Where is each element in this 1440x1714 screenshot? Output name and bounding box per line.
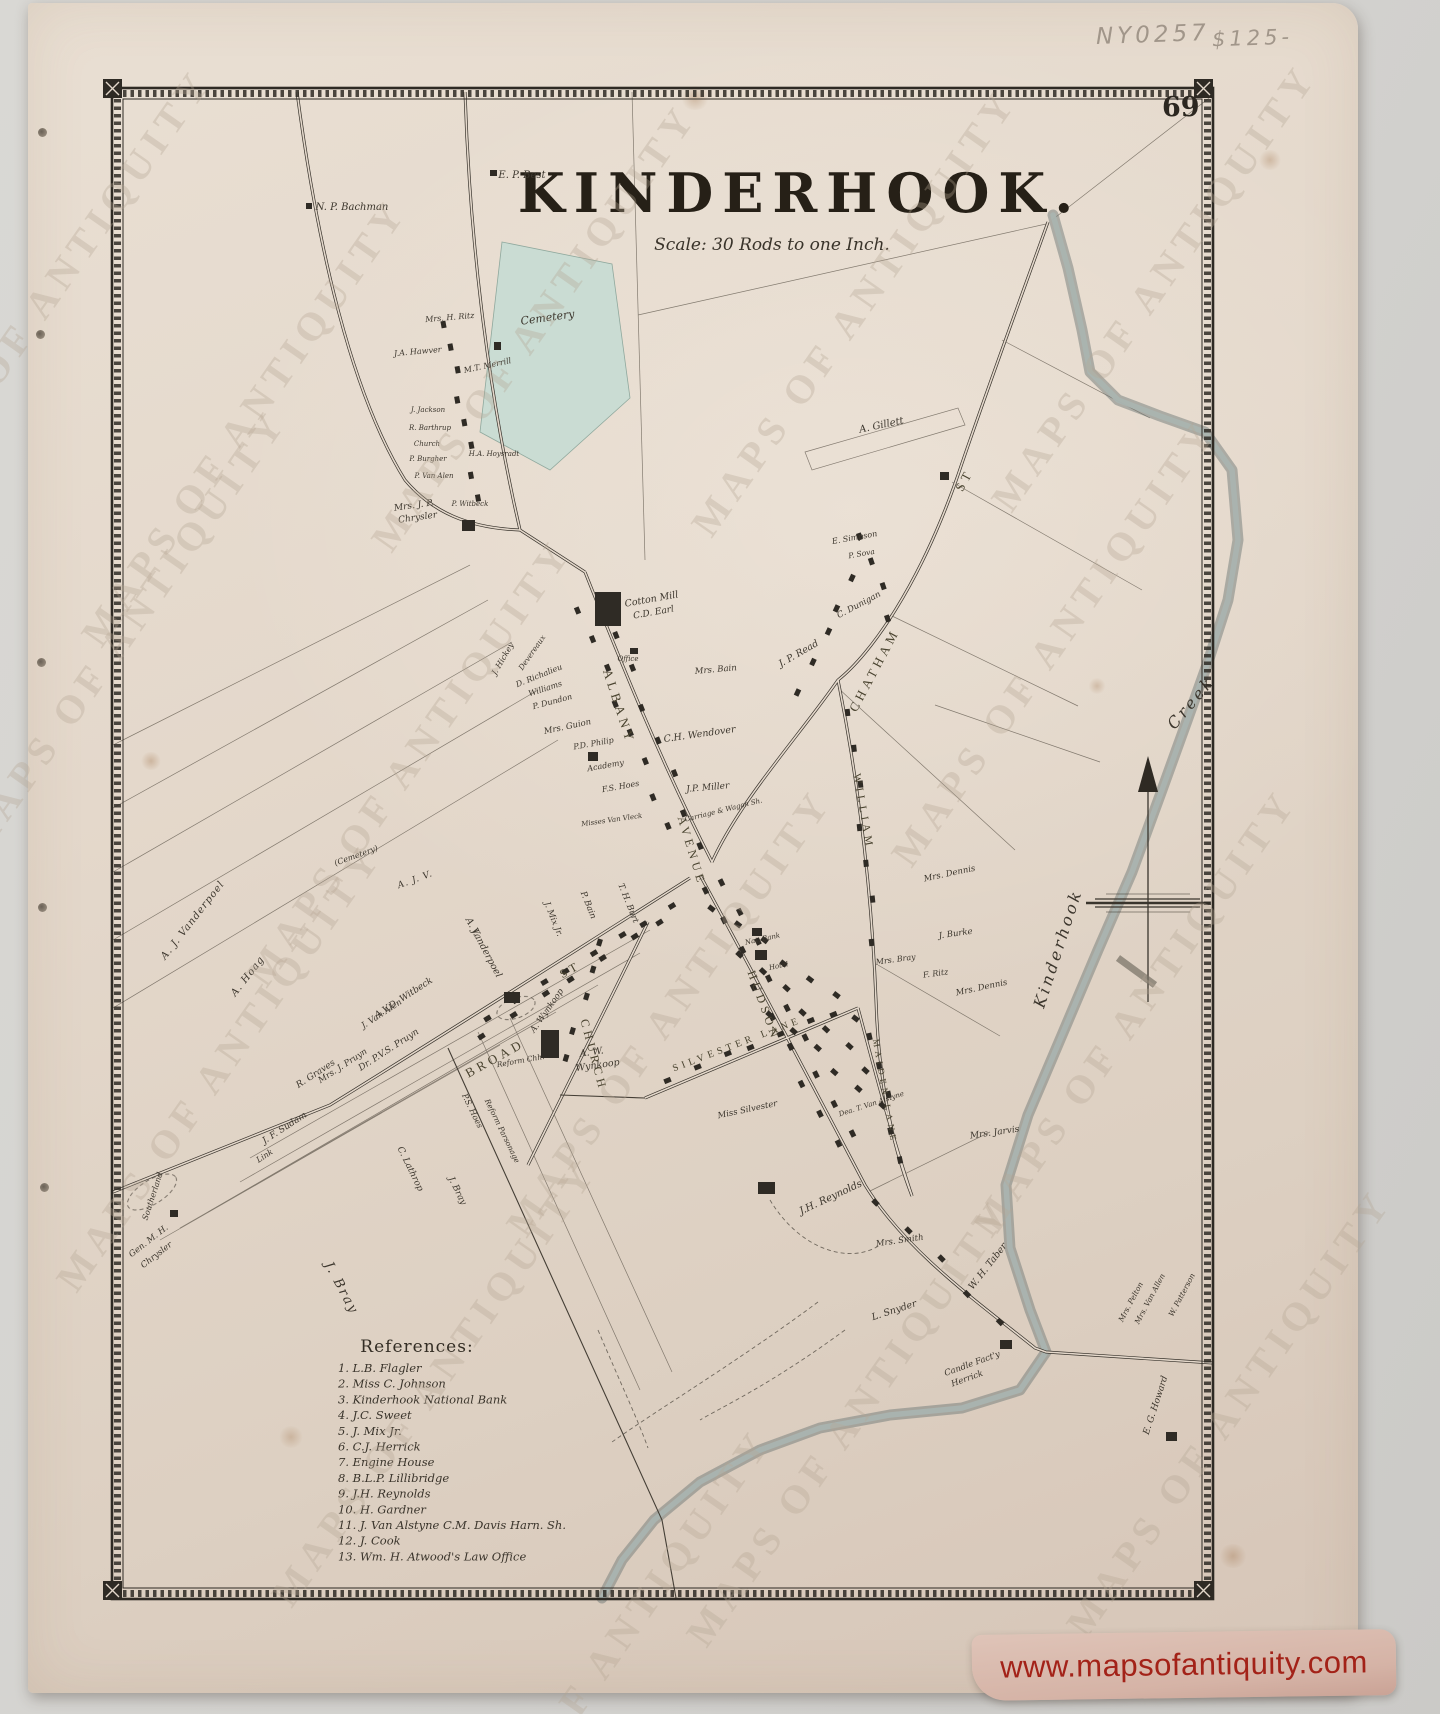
dealer-url-strip: www.mapsofantiquity.com [972,1629,1397,1701]
map-label: J. Burke [936,927,973,942]
dealer-watermark: MAPS OF ANTIQUITY [982,55,1326,519]
building [649,793,656,801]
map-label: A. J. Vanderpoel [158,879,227,963]
map-label: Mrs. Dennis [922,864,977,885]
photo-of-antique-map: { "photo": { "watermark": "MAPS OF ANTIQ… [0,0,1440,1714]
building [783,1004,791,1012]
dealer-watermark: MAPS OF ANTIQUITY [262,1150,606,1614]
building [569,1027,576,1035]
map-label: F.S. Hoes [600,779,640,795]
building [642,757,649,765]
building [563,1054,570,1062]
map-scale-note: Scale: 30 Rods to one Inch. [654,235,890,255]
map-label: F. Ritz [921,967,949,980]
building [807,1017,815,1024]
reference-item: 13. Wm. H. Atwood's Law Office [338,1549,527,1563]
map-label: Hotel [767,960,789,972]
building [758,1182,775,1194]
building-footprints [170,170,1177,1441]
map-label: J. Bray [320,1257,362,1317]
dealer-watermark: MAPS OF ANTIQUITY [0,400,296,864]
reference-item: 1. L.B. Flagler [338,1361,423,1375]
map-label: Carriage & Wagon Sh. [684,797,763,824]
building [830,1100,838,1108]
map-label: AVENUE [675,814,709,887]
building [468,471,474,479]
building [455,366,461,374]
map-label: C. Lathrop [395,1145,425,1193]
building [884,614,891,622]
building [630,648,638,654]
building [574,606,581,614]
map-label: J.A. Hawver [392,345,443,358]
map-label: Mrs. Bray [874,952,917,967]
map-drawing: KINDERHOOK. Scale: 30 Rods to one Inch. … [0,0,1440,1714]
map-label: Mrs. H. Ritz [424,311,476,324]
dealer-watermark: MAPS OF ANTIQUITY [677,1190,1021,1654]
map-label: E. G. Howard [1142,1374,1171,1437]
dealer-watermark: MAPS OF ANTIQUITY [882,410,1226,874]
dealer-watermark: MAPS OF ANTIQUITY [1057,1180,1401,1644]
building [806,975,815,983]
building [590,965,597,973]
map-label: Office [618,655,639,663]
map-label: SILVESTER LANE [671,1015,803,1074]
building [801,1033,809,1041]
building [897,1156,903,1164]
map-label: C.H. Wendover [663,724,738,745]
building [629,664,636,672]
map-label: H.A. Hoysradt [468,450,520,458]
building [798,1080,806,1088]
map-label: ALBANY [600,667,638,746]
map-label: P. Bain [577,889,597,920]
building [1166,1432,1177,1441]
building [812,1070,820,1078]
building [655,919,664,927]
map-label: J. Jackson [409,406,446,414]
building [663,1077,671,1084]
map-label: ST [952,466,976,494]
building [794,688,801,696]
building [830,1068,839,1076]
dealer-watermark: MAPS OF ANTIQUITY [0,60,221,524]
building [825,627,832,635]
map-label: P.D. Philip [572,736,615,752]
building [880,582,887,590]
map-label: J. Van Alen [358,998,404,1033]
building [588,752,598,761]
building [863,860,869,867]
map-label: J. Mix Jr. [541,899,565,938]
dealer-watermark: MAPS OF ANTIQUITY [962,780,1306,1244]
building [940,472,949,480]
map-label: Misses Van Vleck [580,812,643,829]
building [813,1044,822,1052]
building [590,949,599,957]
map-label: W. Patterson [1167,1272,1197,1318]
map-label: Mrs. Jarvis [968,1125,1020,1142]
map-label: CHATHAM [846,626,903,715]
building [854,1085,863,1093]
building [832,991,841,999]
map-label: Mrs. Guion [542,717,592,737]
dealer-watermark: MAPS OF ANTIQUITY [237,530,581,994]
map-label: WILLIAM [850,773,875,851]
map-label: Miss Silvester [716,1099,779,1122]
building [849,1129,857,1137]
building [1000,1340,1012,1349]
map-label: Link [254,1147,275,1165]
map-label: P.S. Hoes [460,1091,485,1129]
map-label: J. Bray [445,1174,468,1208]
building [755,950,767,960]
map-label: A. Gillett [857,415,905,436]
website-url: www.mapsofantiquity.com [1000,1644,1368,1685]
building [618,931,627,939]
building [870,895,876,902]
building [596,938,603,946]
building [462,520,475,531]
building [668,902,677,910]
building [540,978,549,986]
building [612,631,619,639]
building [765,974,773,982]
building [490,170,497,176]
building [822,1025,831,1033]
building [816,1110,824,1118]
map-label: Reform Parsonage [482,1097,522,1165]
building [851,745,857,752]
property-lines [113,92,1213,1390]
building [848,574,855,582]
building [447,343,453,351]
building [306,203,312,209]
map-label: Mrs. Dennis [954,978,1009,999]
building [504,992,520,1003]
building [718,878,726,886]
building [583,992,590,1000]
map-label: C. Dunigan [835,590,882,621]
building [509,1011,518,1019]
building [782,984,791,992]
map-border [103,79,1213,1600]
map-label: P. Witbeck [451,500,489,508]
map-label: Mrs. Van Allen [1132,1272,1167,1327]
building [869,939,875,946]
map-label: J.H. Reynolds [796,1178,864,1217]
building [868,557,875,565]
reference-item: 11. J. Van Alstyne C.M. Davis Harn. Sh. [338,1518,566,1532]
map-label: Vanderpoel [469,926,504,979]
map-label: J.P. Miller [684,781,731,795]
building [861,1066,870,1074]
building [589,635,596,643]
building [631,933,640,941]
map-label: Mrs. Bain [693,663,737,677]
building [664,822,671,830]
building [798,1008,807,1016]
building [170,1210,178,1217]
building [809,658,816,666]
building [595,592,621,626]
map-label: E. P. Best [497,170,546,181]
map-label: E. Simpson [830,529,878,546]
building [845,1042,854,1050]
map-label: A. J. V. [395,869,434,891]
